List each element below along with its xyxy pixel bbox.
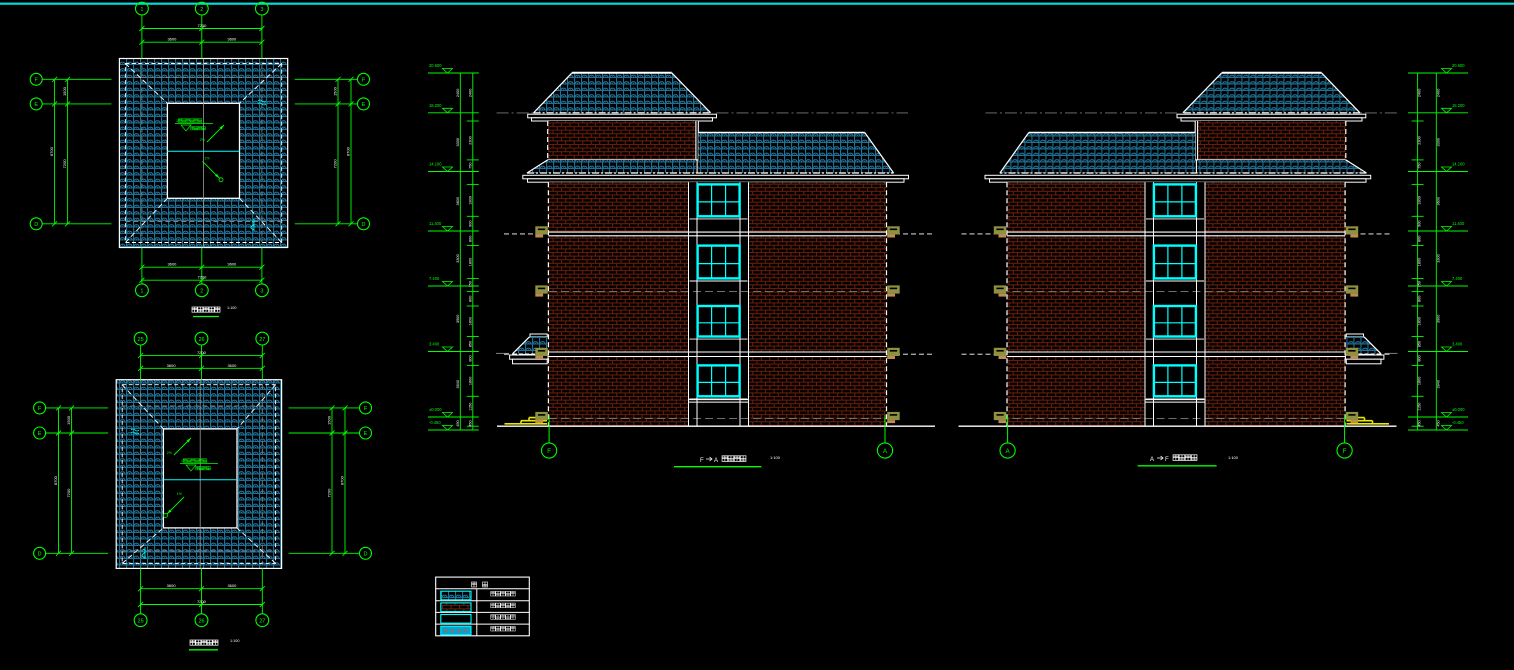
svg-text:1500: 1500 xyxy=(66,415,71,425)
svg-text:1:100: 1:100 xyxy=(230,639,240,643)
svg-text:8700: 8700 xyxy=(49,146,54,156)
svg-text:D: D xyxy=(362,222,366,228)
svg-text:D: D xyxy=(34,222,38,228)
svg-text:1:100: 1:100 xyxy=(227,306,237,310)
svg-text:7.400: 7.400 xyxy=(429,276,440,281)
svg-text:1%: 1% xyxy=(205,156,211,160)
svg-text:1800: 1800 xyxy=(468,258,472,266)
svg-text:D: D xyxy=(38,551,42,557)
svg-text:3600: 3600 xyxy=(1436,197,1440,205)
svg-text:450: 450 xyxy=(1436,420,1440,426)
svg-text:-0.450: -0.450 xyxy=(429,420,441,425)
svg-text:2%: 2% xyxy=(200,138,206,142)
svg-text:1500: 1500 xyxy=(333,86,338,96)
svg-text:8700: 8700 xyxy=(53,475,58,485)
svg-text:1150: 1150 xyxy=(468,403,472,411)
svg-text:3600: 3600 xyxy=(167,363,177,368)
svg-text:-0.450: -0.450 xyxy=(1452,420,1464,425)
svg-text:7200: 7200 xyxy=(327,488,332,498)
svg-text:3600: 3600 xyxy=(227,37,237,42)
svg-text:3300: 3300 xyxy=(456,254,460,262)
svg-text:20.600: 20.600 xyxy=(429,63,442,68)
svg-text:3600: 3600 xyxy=(227,583,237,588)
svg-text:2: 2 xyxy=(200,289,203,295)
svg-text:1500: 1500 xyxy=(327,415,332,425)
svg-text:A: A xyxy=(714,458,718,464)
svg-text:F: F xyxy=(1343,449,1347,455)
svg-text:2300: 2300 xyxy=(1418,136,1422,144)
svg-text:3: 3 xyxy=(260,7,263,13)
svg-text:7200: 7200 xyxy=(197,23,207,28)
svg-text:450: 450 xyxy=(468,420,472,426)
svg-text:3.400: 3.400 xyxy=(429,342,440,347)
svg-text:±0.000: ±0.000 xyxy=(429,407,442,412)
svg-text:F: F xyxy=(700,458,704,464)
svg-text:3600: 3600 xyxy=(167,262,177,267)
svg-text:3600: 3600 xyxy=(456,197,460,205)
svg-text:800: 800 xyxy=(1418,236,1422,242)
svg-text:750: 750 xyxy=(468,163,472,169)
svg-text:25: 25 xyxy=(138,618,144,624)
svg-text:750: 750 xyxy=(1418,281,1422,287)
svg-text:750: 750 xyxy=(1418,163,1422,169)
svg-text:3600: 3600 xyxy=(227,262,237,267)
svg-text:E: E xyxy=(34,102,38,108)
svg-text:2400: 2400 xyxy=(1436,89,1440,97)
svg-text:1:100: 1:100 xyxy=(1228,455,1239,460)
svg-text:7200: 7200 xyxy=(66,488,71,498)
svg-text:25: 25 xyxy=(138,337,144,343)
svg-text:A: A xyxy=(1006,449,1010,455)
svg-text:3900: 3900 xyxy=(456,315,460,323)
svg-text:18.200: 18.200 xyxy=(1452,103,1465,108)
svg-text:20.600: 20.600 xyxy=(1452,63,1465,68)
svg-text:3: 3 xyxy=(260,289,263,295)
svg-text:1800: 1800 xyxy=(468,196,472,204)
svg-text:2%: 2% xyxy=(167,451,173,455)
svg-text:450: 450 xyxy=(456,420,460,426)
svg-text:1500: 1500 xyxy=(62,86,67,96)
svg-text:900: 900 xyxy=(468,221,472,227)
svg-text:26: 26 xyxy=(198,618,204,624)
svg-text:3300: 3300 xyxy=(1436,254,1440,262)
svg-text:E: E xyxy=(38,431,42,437)
svg-text:7200: 7200 xyxy=(197,275,207,280)
svg-text:7.400: 7.400 xyxy=(1452,276,1463,281)
svg-text:D: D xyxy=(364,551,368,557)
svg-text:800: 800 xyxy=(468,296,472,302)
svg-text:850: 850 xyxy=(468,341,472,347)
svg-text:18.200: 18.200 xyxy=(429,103,442,108)
svg-text:14.100: 14.100 xyxy=(429,162,442,167)
svg-text:3600: 3600 xyxy=(167,37,177,42)
svg-text:2400: 2400 xyxy=(456,89,460,97)
svg-text:E: E xyxy=(362,102,366,108)
svg-text:1%: 1% xyxy=(177,492,183,496)
svg-text:A: A xyxy=(883,449,887,455)
svg-text:14.100: 14.100 xyxy=(1452,162,1465,167)
svg-text:8700: 8700 xyxy=(346,146,351,156)
svg-text:3940: 3940 xyxy=(1436,380,1440,388)
svg-text:1: 1 xyxy=(140,7,143,13)
svg-text:7200: 7200 xyxy=(197,599,207,604)
svg-text:3300: 3300 xyxy=(1436,138,1440,146)
svg-text:3900: 3900 xyxy=(1436,315,1440,323)
svg-text:1:100: 1:100 xyxy=(770,455,781,460)
svg-text:3600: 3600 xyxy=(227,363,237,368)
svg-text:7200: 7200 xyxy=(197,350,207,355)
svg-text:2400: 2400 xyxy=(1418,89,1422,97)
svg-text:1800: 1800 xyxy=(468,377,472,385)
svg-text:F: F xyxy=(547,449,551,455)
svg-text:850: 850 xyxy=(1418,341,1422,347)
svg-text:450: 450 xyxy=(1418,420,1422,426)
svg-text:800: 800 xyxy=(468,236,472,242)
svg-text:800: 800 xyxy=(1418,296,1422,302)
svg-text:7200: 7200 xyxy=(333,159,338,169)
svg-text:1800: 1800 xyxy=(468,317,472,325)
svg-text:2: 2 xyxy=(200,7,203,13)
svg-text:3600: 3600 xyxy=(167,583,177,588)
svg-text:1800: 1800 xyxy=(1418,317,1422,325)
svg-text:1800: 1800 xyxy=(1418,258,1422,266)
svg-text:7200: 7200 xyxy=(62,159,67,169)
svg-text:800: 800 xyxy=(468,355,472,361)
svg-text:3.400: 3.400 xyxy=(1452,342,1463,347)
svg-text:11.400: 11.400 xyxy=(429,221,442,226)
svg-text:27: 27 xyxy=(259,337,265,343)
svg-text:A: A xyxy=(1150,457,1154,463)
svg-text:3300: 3300 xyxy=(456,138,460,146)
svg-text:1: 1 xyxy=(140,289,143,295)
svg-text:1800: 1800 xyxy=(1418,196,1422,204)
svg-text:750: 750 xyxy=(468,281,472,287)
svg-text:2300: 2300 xyxy=(468,136,472,144)
svg-text:800: 800 xyxy=(1418,355,1422,361)
svg-text:8700: 8700 xyxy=(340,475,345,485)
svg-text:1150: 1150 xyxy=(1418,403,1422,411)
svg-text:±0.000: ±0.000 xyxy=(1452,407,1465,412)
svg-text:26: 26 xyxy=(198,337,204,343)
svg-text:27: 27 xyxy=(259,618,265,624)
svg-text:900: 900 xyxy=(1418,221,1422,227)
svg-text:E: E xyxy=(364,431,368,437)
svg-text:1800: 1800 xyxy=(1418,377,1422,385)
svg-text:3940: 3940 xyxy=(456,380,460,388)
svg-text:11.400: 11.400 xyxy=(1452,221,1465,226)
svg-text:2400: 2400 xyxy=(468,89,472,97)
svg-text:F: F xyxy=(1165,457,1169,463)
